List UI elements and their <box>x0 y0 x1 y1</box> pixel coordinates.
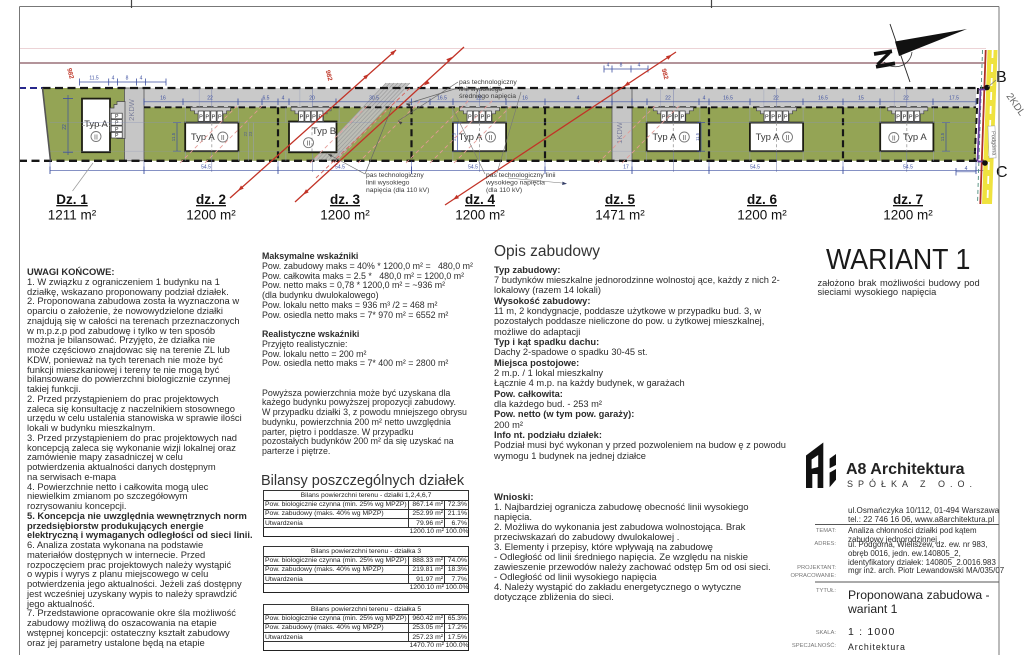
svg-text:P: P <box>674 115 678 121</box>
svg-text:C: C <box>996 164 1008 181</box>
svg-text:P: P <box>312 115 316 121</box>
svg-text:1200 m²: 1200 m² <box>320 208 370 223</box>
svg-text:54.5: 54.5 <box>750 165 760 171</box>
svg-text:P: P <box>784 115 788 121</box>
svg-text:4: 4 <box>577 96 580 102</box>
svg-text:dz. 7: dz. 7 <box>893 192 923 207</box>
svg-text:II: II <box>94 135 98 142</box>
svg-text:1200 m²: 1200 m² <box>186 208 236 223</box>
svg-text:11.5: 11.5 <box>940 132 945 141</box>
svg-text:II: II <box>221 135 225 142</box>
svg-text:P: P <box>468 115 472 121</box>
svg-text:II: II <box>786 135 790 142</box>
svg-text:16.5: 16.5 <box>723 96 733 102</box>
svg-text:4: 4 <box>703 96 706 102</box>
svg-text:Typ A: Typ A <box>756 132 780 143</box>
svg-text:P: P <box>115 127 119 133</box>
svg-text:P: P <box>218 115 222 121</box>
svg-text:982: 982 <box>65 67 75 80</box>
svg-text:16: 16 <box>160 96 166 102</box>
svg-text:P: P <box>299 115 303 121</box>
svg-text:11.5: 11.5 <box>171 132 176 141</box>
svg-text:54.5: 54.5 <box>335 165 345 171</box>
svg-text:982: 982 <box>660 68 670 81</box>
svg-text:22: 22 <box>62 124 68 130</box>
svg-text:dz. 6: dz. 6 <box>747 192 777 207</box>
svg-text:20: 20 <box>309 96 315 102</box>
svg-text:P: P <box>115 133 119 139</box>
svg-text:P: P <box>903 115 907 121</box>
svg-text:4: 4 <box>638 63 641 69</box>
svg-text:linii wysokiego: linii wysokiego <box>459 86 503 93</box>
svg-text:dz. 5: dz. 5 <box>605 192 635 207</box>
svg-text:1KDW: 1KDW <box>615 121 624 144</box>
svg-text:pas technologiczny linii: pas technologiczny linii <box>486 172 556 179</box>
svg-text:16.5: 16.5 <box>818 96 828 102</box>
svg-text:54.5: 54.5 <box>201 165 211 171</box>
svg-text:54.5: 54.5 <box>903 165 913 171</box>
svg-text:17.5: 17.5 <box>949 96 959 102</box>
svg-text:8: 8 <box>126 76 129 82</box>
svg-text:P: P <box>909 115 913 121</box>
svg-text:4: 4 <box>965 166 968 172</box>
svg-text:P: P <box>765 115 769 121</box>
svg-text:22: 22 <box>903 96 909 102</box>
svg-text:II: II <box>682 135 686 142</box>
svg-text:8: 8 <box>620 63 623 69</box>
svg-text:4: 4 <box>282 96 285 102</box>
svg-text:napięcia (dla 110 kV): napięcia (dla 110 kV) <box>366 187 429 194</box>
svg-text:2KDL: 2KDL <box>1004 91 1024 118</box>
svg-text:Podgórna: Podgórna <box>990 131 997 156</box>
svg-text:22: 22 <box>773 96 779 102</box>
svg-text:II: II <box>892 136 896 143</box>
svg-text:Typ B: Typ B <box>312 126 336 137</box>
svg-text:P: P <box>668 115 672 121</box>
svg-text:P: P <box>212 115 216 121</box>
svg-text:16: 16 <box>522 96 528 102</box>
svg-text:dz. 3: dz. 3 <box>330 192 360 207</box>
svg-text:P: P <box>487 115 491 121</box>
svg-text:1471 m²: 1471 m² <box>595 208 645 223</box>
svg-text:P: P <box>915 115 919 121</box>
svg-text:16.5: 16.5 <box>437 96 447 102</box>
svg-text:4: 4 <box>112 76 115 82</box>
svg-text:11.5: 11.5 <box>695 132 700 141</box>
svg-text:Typ A: Typ A <box>84 119 108 130</box>
svg-text:17: 17 <box>623 165 629 171</box>
svg-text:pas technologiczny: pas technologiczny <box>366 172 424 179</box>
svg-text:2KDW: 2KDW <box>127 98 136 121</box>
svg-text:1200 m²: 1200 m² <box>455 208 505 223</box>
svg-text:średniego napięcia: średniego napięcia <box>459 93 516 100</box>
svg-text:Typ A: Typ A <box>903 132 927 143</box>
svg-text:54.5: 54.5 <box>468 165 478 171</box>
svg-text:P: P <box>662 115 666 121</box>
svg-text:11.5: 11.5 <box>89 76 99 82</box>
svg-text:P: P <box>474 115 478 121</box>
svg-text:linii wysokiego: linii wysokiego <box>366 180 410 187</box>
svg-text:dz. 2: dz. 2 <box>196 192 226 207</box>
svg-text:B: B <box>996 69 1007 86</box>
svg-text:P: P <box>778 115 782 121</box>
svg-text:P: P <box>115 120 119 126</box>
svg-text:22: 22 <box>665 96 671 102</box>
svg-text:30.5: 30.5 <box>369 96 379 102</box>
svg-text:P: P <box>115 114 119 120</box>
svg-text:P: P <box>306 115 310 121</box>
svg-text:4: 4 <box>140 76 143 82</box>
svg-text:II: II <box>489 135 493 142</box>
svg-text:II: II <box>307 141 311 148</box>
svg-text:Typ A: Typ A <box>652 132 676 143</box>
svg-text:1211 m²: 1211 m² <box>48 208 97 223</box>
svg-text:P: P <box>771 115 775 121</box>
svg-text:1200 m²: 1200 m² <box>883 208 933 223</box>
svg-text:P: P <box>199 115 203 121</box>
svg-text:1200 m²: 1200 m² <box>737 208 787 223</box>
svg-text:P: P <box>481 115 485 121</box>
svg-text:P: P <box>205 115 209 121</box>
svg-text:23: 23 <box>248 131 253 136</box>
svg-text:6.5: 6.5 <box>263 96 270 102</box>
svg-text:P: P <box>896 115 900 121</box>
svg-text:15: 15 <box>858 96 864 102</box>
svg-text:P: P <box>681 115 685 121</box>
svg-text:Dz. 1: Dz. 1 <box>56 192 88 207</box>
svg-text:dz. 4: dz. 4 <box>465 192 495 207</box>
svg-text:4: 4 <box>607 63 610 69</box>
svg-text:pas technologiczny: pas technologiczny <box>459 79 517 86</box>
svg-text:982: 982 <box>324 69 334 82</box>
svg-text:Typ A: Typ A <box>191 132 215 143</box>
svg-text:22: 22 <box>207 96 213 102</box>
